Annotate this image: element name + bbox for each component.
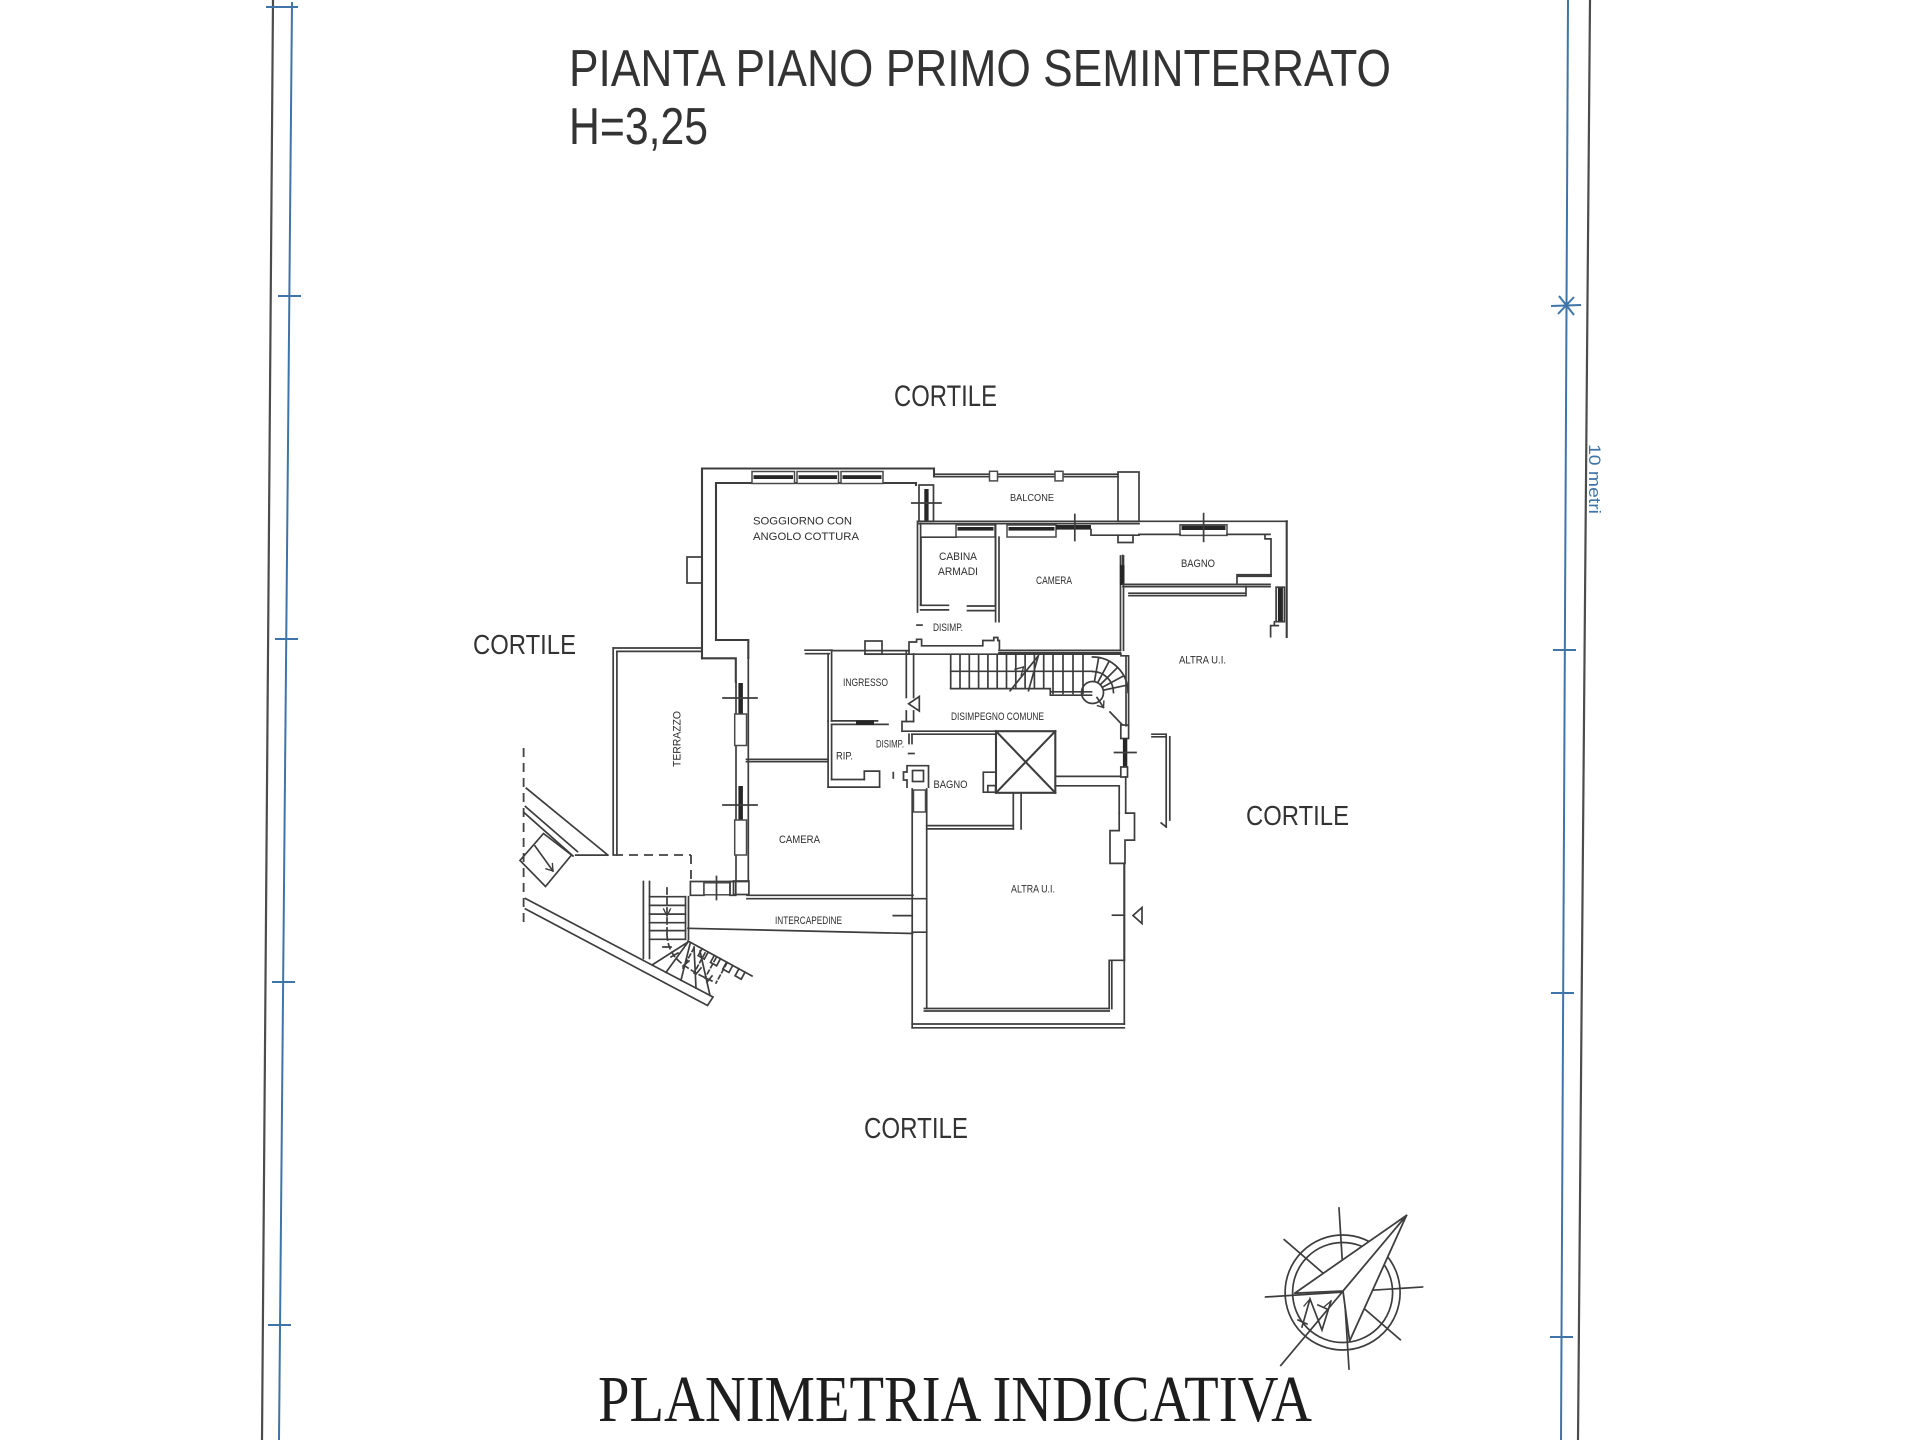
svg-text:H=3,25: H=3,25 [569, 98, 708, 156]
svg-text:BAGNO: BAGNO [1181, 558, 1215, 570]
svg-text:CABINA: CABINA [939, 551, 978, 563]
svg-text:ALTRA U.I.: ALTRA U.I. [1179, 655, 1226, 667]
svg-text:BAGNO: BAGNO [934, 779, 968, 791]
svg-text:CORTILE: CORTILE [473, 629, 576, 660]
svg-text:10 metri: 10 metri [1585, 444, 1604, 514]
svg-text:CAMERA: CAMERA [779, 834, 821, 846]
svg-text:CAMERA: CAMERA [1036, 575, 1073, 587]
svg-text:CORTILE: CORTILE [864, 1113, 968, 1145]
svg-text:CORTILE: CORTILE [894, 380, 997, 413]
svg-text:ANGOLO COTTURA: ANGOLO COTTURA [753, 531, 860, 543]
svg-text:PIANTA PIANO PRIMO SEMINTERRAT: PIANTA PIANO PRIMO SEMINTERRATO [569, 40, 1391, 98]
svg-text:SOGGIORNO CON: SOGGIORNO CON [753, 516, 852, 528]
svg-text:PLANIMETRIA INDICATIVA: PLANIMETRIA INDICATIVA [598, 1363, 1312, 1436]
svg-text:ALTRA U.I.: ALTRA U.I. [1011, 884, 1055, 896]
svg-text:DISIMP.: DISIMP. [876, 739, 904, 751]
svg-text:INGRESSO: INGRESSO [843, 677, 888, 689]
svg-text:INTERCAPEDINE: INTERCAPEDINE [775, 915, 842, 927]
svg-text:CORTILE: CORTILE [1246, 800, 1349, 831]
svg-text:DISIMPEGNO COMUNE: DISIMPEGNO COMUNE [951, 711, 1044, 723]
svg-text:BALCONE: BALCONE [1010, 492, 1054, 504]
svg-text:ARMADI: ARMADI [938, 566, 978, 578]
svg-text:TERRAZZO: TERRAZZO [672, 711, 684, 767]
svg-text:RIP.: RIP. [836, 751, 853, 763]
svg-text:DISIMP.: DISIMP. [933, 622, 963, 634]
